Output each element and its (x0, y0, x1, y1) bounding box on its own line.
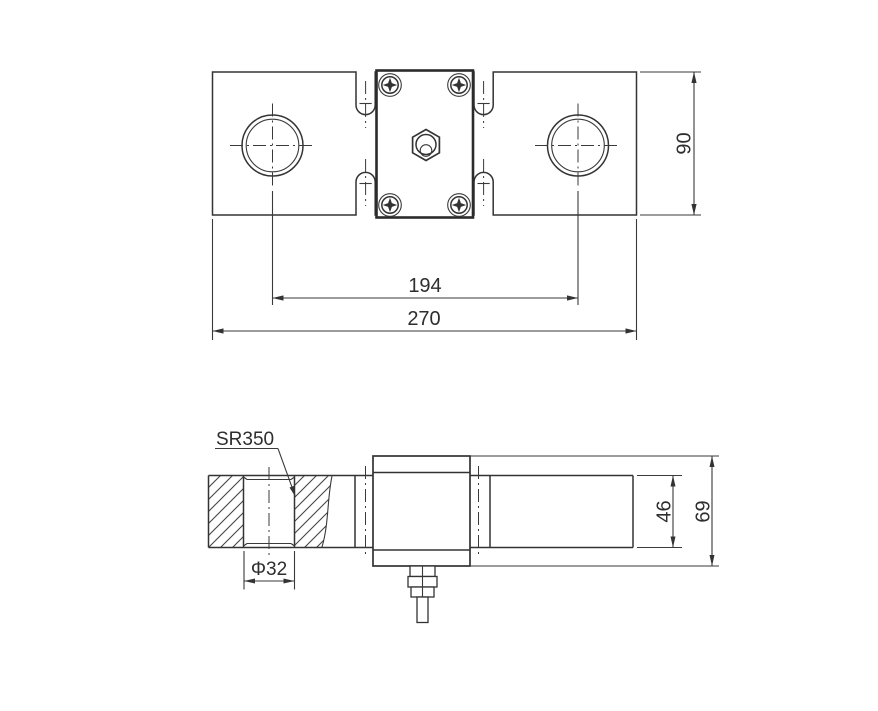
drawing-canvas: 90 194 270 (0, 0, 878, 711)
sr350-text: SR350 (216, 429, 274, 450)
dimension-90: 90 (640, 72, 701, 215)
dim-overall-height-label: 69 (693, 500, 715, 522)
dimension-46: 46 (637, 476, 682, 548)
dim-overall-width-label: 270 (407, 308, 440, 330)
dimension-phi32: Φ32 (244, 551, 295, 590)
hex-gland-top (413, 130, 440, 161)
dimension-69: 69 (470, 456, 719, 566)
top-view: 90 194 270 (213, 71, 702, 341)
dim-hole-spacing-label: 194 (408, 275, 441, 297)
side-view: SR350 Φ32 46 (209, 429, 720, 623)
section-hatch-right (295, 476, 333, 547)
screw-bottom-left-icon (379, 194, 402, 217)
junction-box-side (373, 456, 470, 566)
side-body-right (470, 476, 633, 548)
cable-gland (408, 566, 437, 597)
dim-beam-height-label: 46 (654, 500, 676, 522)
cable (417, 597, 428, 623)
screw-top-left-icon (379, 74, 402, 97)
dim-hole-diameter-label: Φ32 (251, 559, 287, 580)
screw-top-right-icon (448, 74, 471, 97)
dim-body-height-label: 90 (674, 132, 696, 154)
section-hatch-left (209, 476, 243, 547)
technical-drawing: 90 194 270 (0, 0, 878, 711)
screw-bottom-right-icon (448, 194, 471, 217)
